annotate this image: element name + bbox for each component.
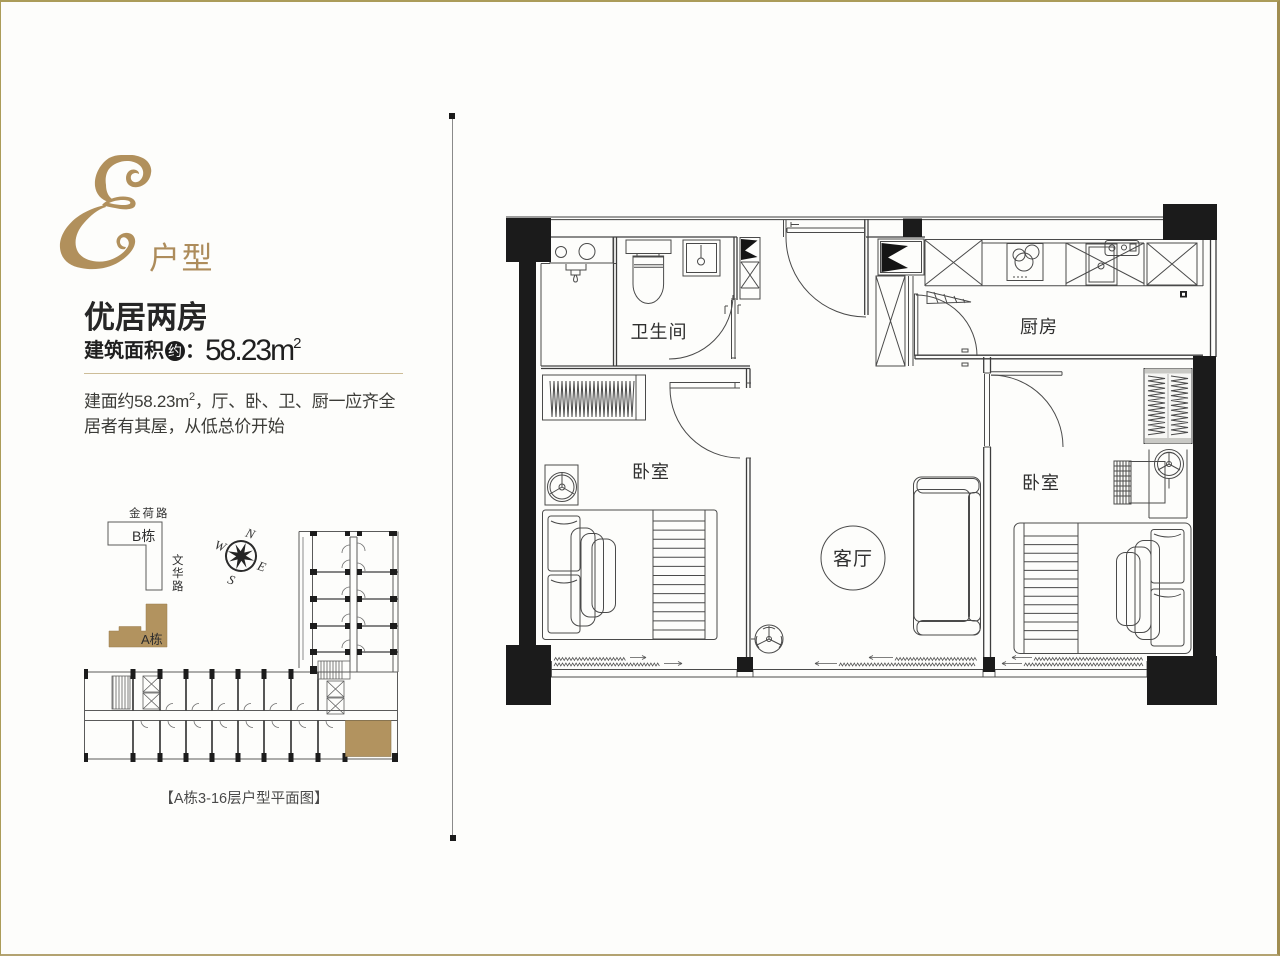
svg-text:客厅: 客厅 — [833, 548, 873, 570]
svg-text:A栋: A栋 — [141, 632, 163, 647]
svg-text:厨房: 厨房 — [1020, 317, 1058, 337]
svg-text:金荷路: 金荷路 — [129, 506, 170, 520]
svg-text:卫生间: 卫生间 — [631, 322, 688, 342]
svg-text:路: 路 — [172, 579, 184, 593]
svg-text:E: E — [255, 557, 269, 574]
svg-text:华: 华 — [172, 566, 184, 580]
svg-text:卧室: 卧室 — [1022, 473, 1060, 493]
svg-text:卧室: 卧室 — [632, 462, 670, 482]
svg-text:文: 文 — [172, 553, 184, 567]
svg-text:N: N — [243, 524, 258, 542]
svg-text:S: S — [226, 571, 238, 587]
svg-text:B栋: B栋 — [132, 528, 155, 544]
